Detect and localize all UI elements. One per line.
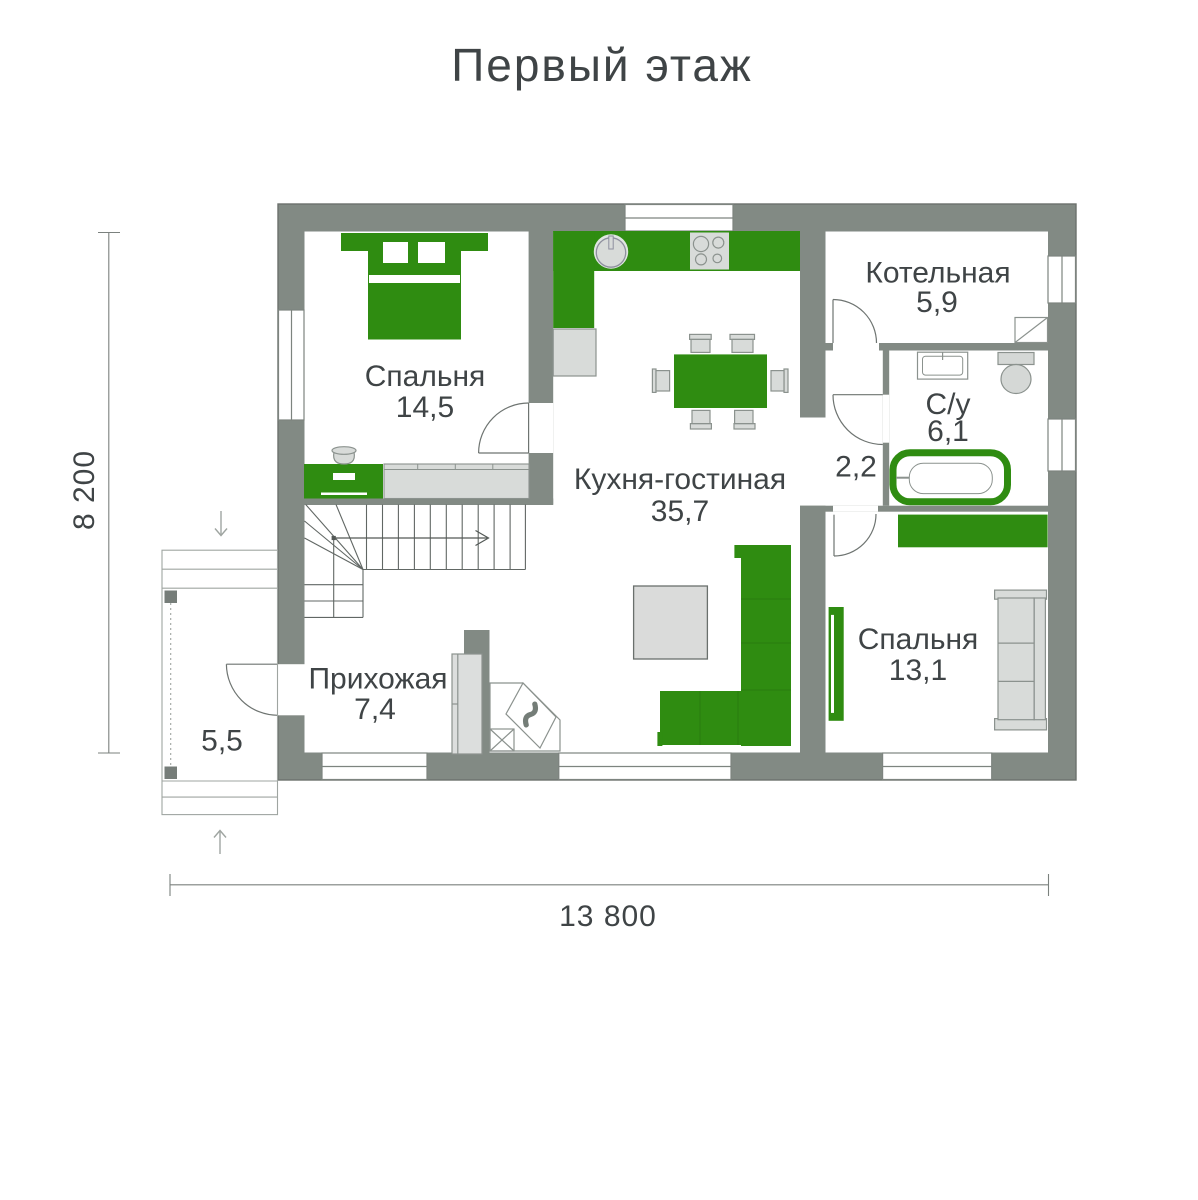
svg-text:8 200: 8 200: [68, 450, 101, 530]
svg-text:13,1: 13,1: [889, 654, 947, 687]
svg-text:7,4: 7,4: [354, 693, 396, 726]
svg-text:Кухня-гостиная: Кухня-гостиная: [574, 463, 786, 496]
svg-text:Котельная: Котельная: [865, 257, 1010, 290]
svg-text:Спальня: Спальня: [365, 360, 486, 393]
svg-text:Прихожая: Прихожая: [308, 663, 447, 696]
svg-text:6,1: 6,1: [927, 415, 969, 448]
svg-text:35,7: 35,7: [651, 495, 709, 528]
svg-text:5,5: 5,5: [201, 725, 243, 758]
svg-text:2,2: 2,2: [835, 451, 877, 484]
svg-text:13 800: 13 800: [559, 900, 657, 933]
svg-text:Спальня: Спальня: [858, 623, 979, 656]
svg-text:14,5: 14,5: [396, 391, 454, 424]
svg-text:5,9: 5,9: [916, 286, 958, 319]
svg-text:Первый этаж: Первый этаж: [451, 39, 753, 91]
